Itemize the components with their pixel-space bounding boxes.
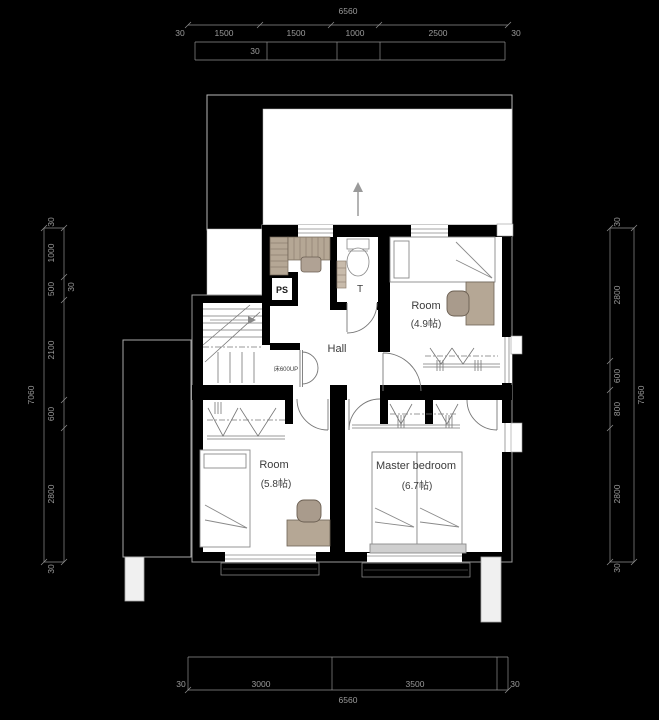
room-a-closet-floor	[390, 345, 502, 390]
ps-label: PS	[276, 285, 288, 295]
dim-top-0: 30	[175, 28, 185, 38]
dim-right-2: 600	[612, 369, 622, 383]
room-a-bed	[390, 237, 495, 282]
dim-top-4: 2500	[429, 28, 448, 38]
dim-left-0: 30	[46, 217, 56, 227]
toilet-shelf	[337, 261, 346, 288]
dim-left-3: 2100	[46, 340, 56, 359]
stair-opening	[262, 345, 270, 385]
dim-right-1: 2800	[612, 285, 622, 304]
room-a-chair	[447, 291, 469, 316]
stair-note-label: 床600UP	[274, 365, 298, 373]
dim-top-3: 1000	[346, 28, 365, 38]
toilet-label: T	[357, 284, 363, 295]
dim-left-5: 2800	[46, 484, 56, 503]
dim-bottom-2: 3500	[406, 679, 425, 689]
dim-right-total: 7060	[636, 385, 646, 404]
dim-left-6: 30	[46, 564, 56, 574]
master-size: (6.7帖)	[402, 479, 433, 492]
dim-right-3: 800	[612, 402, 622, 416]
dim-top-sub: 30	[250, 46, 260, 56]
dim-left-4: 600	[46, 407, 56, 421]
corridor	[378, 352, 390, 390]
dim-bottom-0: 30	[176, 679, 186, 689]
dim-bottom-total: 6560	[339, 695, 358, 705]
toilet-fixture	[347, 239, 369, 276]
dim-right-5: 30	[612, 563, 622, 573]
room-b-desk	[287, 520, 330, 546]
dim-top-total: 6560	[339, 6, 358, 16]
dim-left-2: 500	[46, 282, 56, 296]
dim-right-4: 2800	[612, 484, 622, 503]
hall-label: Hall	[328, 343, 347, 355]
roof-section	[207, 229, 262, 295]
room-a-size: (4.9帖)	[411, 317, 442, 330]
room-a-desk	[466, 282, 494, 325]
floor-plan-drawing: Hall T PS 床600UP Room (4.9帖) Room (5.8帖)…	[0, 0, 659, 720]
window-sill	[511, 336, 522, 354]
floor-plan-canvas: Hall T PS 床600UP Room (4.9帖) Room (5.8帖)…	[0, 0, 659, 720]
dim-right-0: 30	[612, 217, 622, 227]
dim-bottom-1: 3000	[252, 679, 271, 689]
dim-left-sub: 30	[66, 282, 76, 292]
dim-left-total: 7060	[26, 385, 36, 404]
room-b-chair	[297, 500, 321, 522]
headboard	[370, 544, 466, 553]
dim-top-2: 1500	[287, 28, 306, 38]
window-sill	[511, 423, 522, 452]
dim-top-1: 1500	[215, 28, 234, 38]
room-b-label: Room	[259, 459, 288, 471]
room-a-label: Room	[411, 300, 440, 312]
room-b-size: (5.8帖)	[261, 477, 292, 490]
room-b-bed	[200, 450, 250, 547]
master-label: Master bedroom	[376, 460, 456, 472]
stair-floor	[203, 303, 262, 385]
dim-left-1: 1000	[46, 243, 56, 262]
dim-bottom-3: 30	[510, 679, 520, 689]
stool	[301, 257, 321, 272]
dim-top-5: 30	[511, 28, 521, 38]
